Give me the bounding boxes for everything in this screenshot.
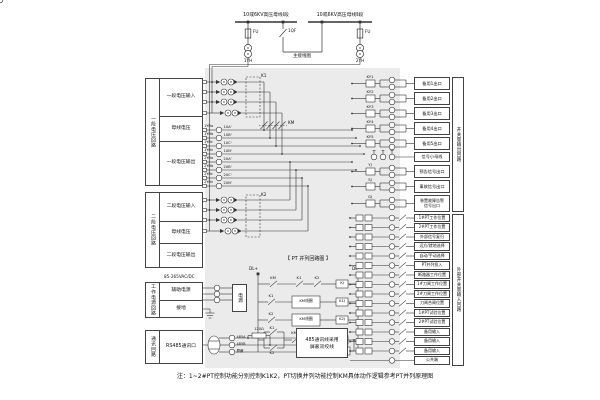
terminal-label: 2UN'	[224, 181, 232, 185]
input-label: 1#PT工作位置	[414, 214, 450, 223]
relay-label: KY1	[361, 75, 379, 79]
relay-label: KY2	[361, 90, 379, 94]
bus2-label: 10或6KV高压母线Ⅱ段	[300, 13, 380, 19]
output-label: 备用1出口	[414, 77, 450, 90]
section2-row-output: 二段电压输出	[160, 243, 202, 267]
wire-label: 2YHc	[204, 172, 213, 176]
km-contact-label: KM	[288, 121, 294, 126]
power-module-box: 电源	[232, 284, 247, 312]
output-section-vertical-label: 开关量输出回路	[452, 77, 464, 212]
bus1-label: 10或6KV高压母线Ⅰ段	[226, 13, 306, 19]
output-label: 事故信号出口	[414, 180, 450, 193]
rs485-note-line1: 485通讯线采用	[305, 336, 338, 343]
terminal-resistor-label: 120Ω	[250, 327, 268, 331]
rs485-row: RS485通讯口	[160, 331, 202, 363]
rail-minus-label: DL-	[352, 267, 359, 272]
ladder-contact: K1	[265, 294, 277, 298]
terminal-label: 2UA'	[224, 157, 232, 161]
ground-row: 接地	[160, 300, 202, 318]
power-input	[203, 285, 232, 318]
input-label: 公共端	[414, 356, 450, 365]
wire-label: 1YHa	[204, 124, 213, 128]
ladder-contact: K2	[266, 351, 278, 355]
section1-row-output: 一段电压输出	[160, 141, 202, 185]
terminal-label: 1UN'	[224, 149, 232, 153]
relay-label: KY4	[361, 120, 379, 124]
wire-label: 2YHn	[204, 180, 213, 184]
pt1-label: 1YH	[239, 59, 257, 64]
section2-row-input: 二段电压输入	[160, 193, 202, 221]
input-label: 2#刀闸工作位置	[414, 290, 450, 299]
input-label: 2#PT试验位置	[414, 318, 450, 327]
ladder-coil: K1J	[336, 299, 348, 303]
terminal-label: 1UB'	[224, 133, 232, 137]
output-label: 信号小母线	[414, 152, 450, 162]
rs485-note-line2: 屏蔽双绞线	[310, 343, 334, 350]
input-label: 断路器工作位置	[414, 271, 450, 280]
output-label: 备用2出口	[414, 92, 450, 105]
pt2-label: 2YH	[351, 59, 369, 64]
input-label: PT并列投入	[414, 261, 450, 270]
rs485-note-box: 485通讯线采用 屏蔽双绞线	[296, 328, 348, 358]
power-supply-box: 工作电源回路 辅助电源 接地	[145, 282, 203, 318]
main-wiring-label: 主接线图	[286, 54, 318, 59]
input-label: 外部信号复归	[414, 233, 450, 242]
signal-bus-row	[371, 151, 414, 160]
input-label: 备用输入	[414, 337, 450, 346]
ac-range-label: 85-265VAC/DC	[164, 275, 195, 280]
relay-label: SJ	[361, 178, 379, 182]
section2-voltage-box: 二段电压回路 二段电压输入 母线电压 二段电压输出	[145, 192, 203, 268]
input-label: 备用输入	[414, 328, 450, 337]
output-label: 备用5出口	[414, 137, 450, 150]
pt2-symbol	[356, 44, 363, 57]
output-label: 预告信号出口	[414, 165, 450, 178]
ladder-coil: K2J	[336, 317, 348, 321]
input-label: 自动/手动选择	[414, 252, 450, 261]
ladder-contact: K2	[311, 276, 323, 280]
terminal-label: 2UC'	[224, 173, 232, 177]
output-label: 备用3出口	[414, 107, 450, 120]
input-rows	[349, 215, 414, 364]
pt1-symbol	[0, 0, 252, 58]
wire-label: 2YHa	[204, 156, 213, 160]
relay-label: YJ	[361, 163, 379, 167]
wire-label: 2YHb	[204, 164, 213, 168]
wire-label: 1YHc	[204, 140, 213, 144]
terminal-label: 2UB'	[224, 165, 232, 169]
section1-row-input: 一段电压输入	[160, 79, 202, 116]
section2-row-bus: 母线电压	[160, 221, 202, 243]
breaker-label: 1QF	[288, 29, 296, 34]
fault-output-label: 装置故障告警 信号出口	[414, 195, 450, 212]
ladder-contact: K2	[265, 312, 277, 316]
input-label: 刀闸合闸位置	[414, 299, 450, 308]
ladder-block: KM线圈	[292, 299, 320, 303]
fault-label-line2: 信号出口	[424, 204, 440, 209]
pt1-winding-group	[203, 77, 288, 154]
section1-voltage-box: 一段电压回路 一段电压输入 母线电压 一段电压输出	[145, 78, 203, 186]
section1-row-bus: 母线电压	[160, 116, 202, 141]
terminal-label: 1UA'	[224, 125, 232, 129]
section1-vertical-label: 一段电压回路	[146, 79, 160, 185]
comm-vertical-label: 通讯回路	[146, 331, 160, 363]
comm-box: 通讯回路 RS485通讯口	[145, 330, 203, 364]
relay-label: KY3	[361, 105, 379, 109]
pt2-winding-group	[203, 162, 309, 237]
output-label: 备用4出口	[414, 122, 450, 135]
input-label: 备用输入	[414, 347, 450, 356]
footnote: 注：1~2#PT控制功能分别控制K1K2，PT切换并列功能控制KM具体动作逻辑参…	[140, 374, 470, 381]
aux-power-row: 辅助电源	[160, 283, 202, 300]
ladder-contact: KM	[267, 276, 279, 280]
k2-contact-label: K2	[261, 193, 266, 198]
section2-vertical-label: 二段电压回路	[146, 193, 160, 267]
output-rows	[351, 77, 414, 210]
rail-plus-label: DL+	[249, 267, 258, 272]
input-label: 远方/就地选择	[414, 242, 450, 251]
rs485-a-label: 485A	[237, 335, 246, 339]
power-vertical-label: 工作电源回路	[146, 283, 160, 317]
rs485-b-label: 485B	[237, 342, 246, 346]
input-label: 1#刀闸工作位置	[414, 280, 450, 289]
input-label: 2#PT工作位置	[414, 223, 450, 232]
relay-label: GJ	[361, 195, 379, 199]
wire-label: 1YHb	[204, 132, 213, 136]
fuse2-label: FU	[365, 30, 370, 35]
ladder-contact: K1	[293, 276, 305, 280]
ladder-title: 【 PT 并列回路图 】	[252, 257, 364, 263]
input-section-vertical-label: 外部开关量输入回路	[452, 214, 464, 366]
ladder-block: KM线圈	[292, 317, 320, 321]
wire-label: 1YHn	[204, 148, 213, 152]
k1-contact-label: K1	[261, 74, 266, 79]
pt-parallel-schematic: 10或6KV高压母线Ⅰ段 10或6KV高压母线Ⅱ段 FU 1QF FU 1YH …	[0, 0, 600, 400]
terminal-label: 1UC'	[224, 141, 232, 145]
rs485-shield-label: 屏蔽	[237, 349, 244, 353]
input-label: 1#PT试验位置	[414, 309, 450, 318]
main-wiring-diagram	[0, 0, 372, 58]
fuse1-label: FU	[253, 30, 258, 35]
relay-label: KY5	[361, 135, 379, 139]
rs485-comm	[203, 333, 296, 355]
ladder-coil: KJ	[336, 281, 348, 285]
